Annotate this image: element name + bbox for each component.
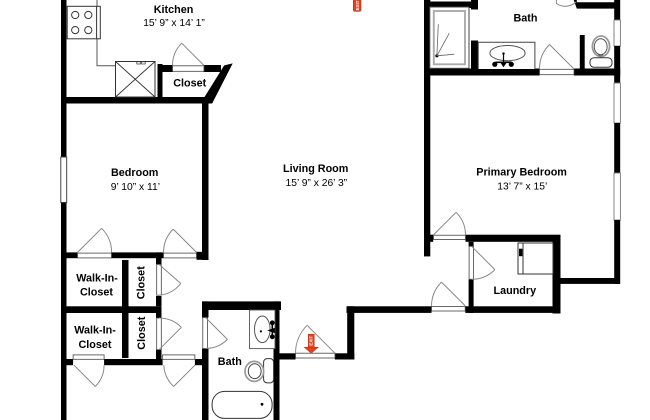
svg-text:Closet: Closet	[173, 78, 206, 90]
svg-text:Closet: Closet	[79, 339, 112, 351]
svg-text:15’ 9” x 14’ 1”: 15’ 9” x 14’ 1”	[143, 18, 205, 29]
svg-text:13’ 7” x 15’: 13’ 7” x 15’	[497, 181, 547, 192]
svg-text:Living Room: Living Room	[283, 163, 348, 175]
svg-text:Closet: Closet	[136, 266, 148, 299]
svg-text:Bath: Bath	[218, 356, 242, 368]
svg-text:Bath: Bath	[514, 13, 538, 25]
svg-text:Closet: Closet	[136, 316, 148, 349]
svg-text:EXIT: EXIT	[309, 336, 314, 346]
svg-text:15’ 9” x 26’ 3”: 15’ 9” x 26’ 3”	[285, 178, 347, 189]
svg-text:Laundry: Laundry	[494, 285, 537, 297]
svg-text:Walk-In-: Walk-In-	[74, 325, 116, 337]
svg-text:EXIT: EXIT	[355, 0, 360, 10]
svg-text:Kitchen: Kitchen	[154, 4, 194, 16]
svg-text:Primary Bedroom: Primary Bedroom	[476, 166, 567, 178]
svg-text:Bedroom: Bedroom	[111, 167, 158, 179]
svg-text:Walk-In-: Walk-In-	[76, 272, 118, 284]
svg-text:Closet: Closet	[80, 287, 113, 299]
svg-text:9’ 10” x 11’: 9’ 10” x 11’	[111, 182, 160, 193]
